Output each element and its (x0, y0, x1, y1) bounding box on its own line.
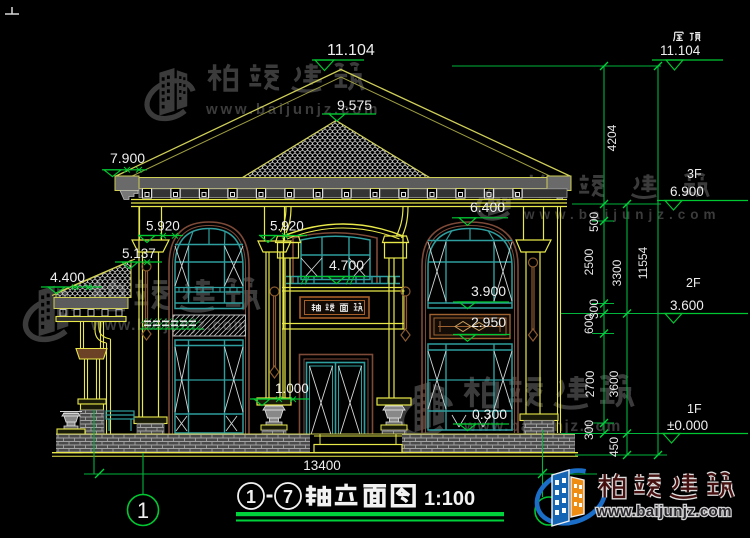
svg-text:1.000: 1.000 (275, 381, 309, 396)
svg-text:0.300: 0.300 (472, 406, 507, 422)
svg-text:1: 1 (137, 498, 149, 523)
svg-text:4.400: 4.400 (50, 269, 85, 285)
svg-text:7.900: 7.900 (110, 150, 145, 166)
svg-text:3.900: 3.900 (471, 283, 506, 299)
svg-text:1F: 1F (687, 402, 702, 416)
svg-text:5.920: 5.920 (270, 219, 304, 234)
svg-text:500: 500 (587, 212, 601, 232)
svg-text:1: 1 (246, 487, 256, 507)
svg-text:11.104: 11.104 (660, 43, 701, 58)
svg-text:13400: 13400 (303, 458, 341, 473)
svg-text:6.400: 6.400 (470, 199, 505, 215)
svg-text:2F: 2F (686, 276, 701, 290)
svg-text:4.700: 4.700 (329, 257, 364, 273)
svg-text:6.900: 6.900 (670, 184, 704, 199)
svg-text:3300: 3300 (610, 259, 624, 286)
svg-text:7: 7 (283, 487, 293, 507)
svg-text:600: 600 (582, 314, 596, 334)
svg-text:2500: 2500 (582, 248, 596, 275)
svg-text:www.baijunjz.com: www.baijunjz.com (523, 207, 721, 222)
svg-text:www.baijunjz.com: www.baijunjz.com (595, 503, 732, 520)
svg-text:5.137: 5.137 (122, 246, 156, 261)
svg-text:11554: 11554 (636, 246, 650, 279)
svg-text:3.600: 3.600 (670, 298, 704, 313)
svg-text:1:100: 1:100 (424, 488, 475, 510)
svg-text:3F: 3F (687, 167, 702, 181)
svg-text:300: 300 (582, 420, 596, 440)
svg-text:5.920: 5.920 (146, 219, 180, 234)
svg-text:9.575: 9.575 (337, 97, 372, 113)
svg-text:2700: 2700 (583, 370, 597, 397)
svg-text:±0.000: ±0.000 (667, 418, 708, 433)
svg-text:2.950: 2.950 (471, 314, 506, 330)
svg-text:3600: 3600 (607, 370, 621, 397)
svg-text:11.104: 11.104 (327, 42, 375, 59)
svg-text:4204: 4204 (605, 124, 619, 151)
svg-text:450: 450 (607, 437, 621, 457)
